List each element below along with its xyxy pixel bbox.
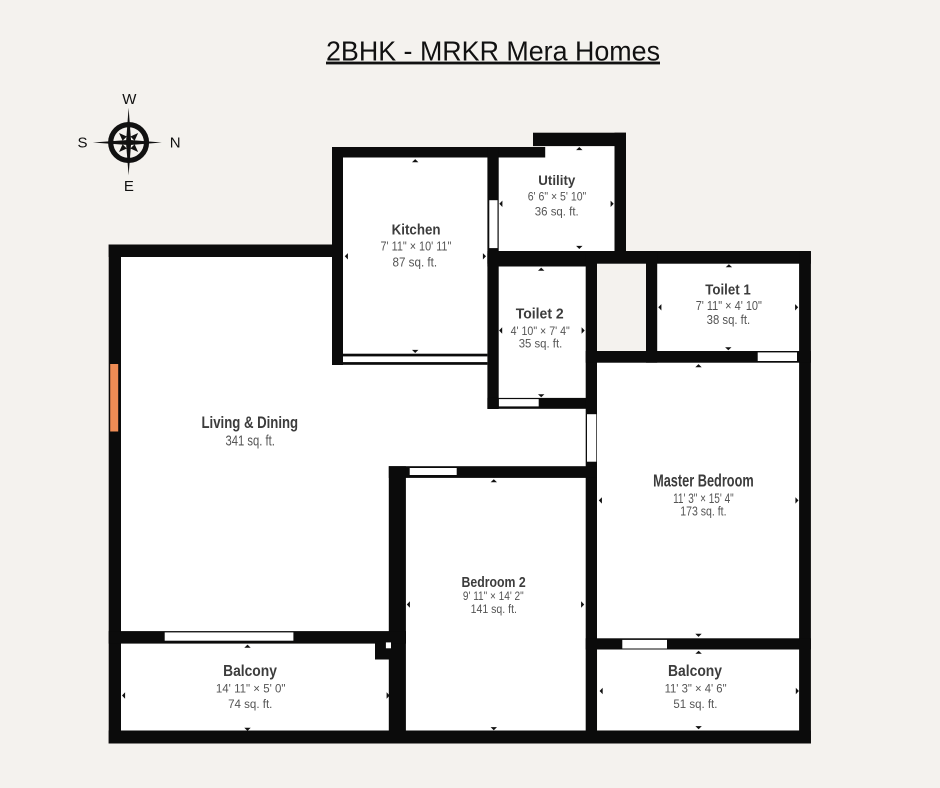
svg-text:Kitchen: Kitchen [392, 223, 441, 239]
svg-text:Living & Dining: Living & Dining [202, 414, 299, 432]
svg-text:Balcony: Balcony [668, 663, 722, 680]
svg-text:87 sq. ft.: 87 sq. ft. [393, 254, 438, 269]
svg-text:9' 11" × 14' 2": 9' 11" × 14' 2" [463, 589, 524, 603]
svg-text:Master Bedroom: Master Bedroom [653, 470, 754, 490]
svg-text:141 sq. ft.: 141 sq. ft. [471, 602, 517, 616]
svg-text:W: W [122, 91, 137, 108]
svg-text:7' 11" × 10' 11": 7' 11" × 10' 11" [381, 239, 452, 254]
svg-text:Toilet 1: Toilet 1 [705, 283, 750, 299]
svg-text:7' 11" × 4' 10": 7' 11" × 4' 10" [696, 299, 762, 313]
svg-text:11' 3" × 4' 6": 11' 3" × 4' 6" [665, 682, 727, 696]
svg-text:38 sq. ft.: 38 sq. ft. [707, 313, 751, 327]
svg-text:Toilet 2: Toilet 2 [516, 307, 564, 323]
svg-text:51 sq. ft.: 51 sq. ft. [673, 697, 717, 711]
svg-text:74 sq. ft.: 74 sq. ft. [228, 697, 272, 711]
svg-text:Balcony: Balcony [223, 663, 277, 680]
svg-text:N: N [170, 135, 181, 152]
svg-text:S: S [77, 135, 87, 152]
svg-text:Utility: Utility [538, 173, 575, 189]
svg-text:173 sq. ft.: 173 sq. ft. [680, 503, 726, 518]
svg-text:36 sq. ft.: 36 sq. ft. [535, 205, 579, 219]
svg-text:6' 6" × 5' 10": 6' 6" × 5' 10" [528, 190, 587, 204]
svg-text:E: E [124, 178, 134, 195]
svg-text:14' 11" × 5' 0": 14' 11" × 5' 0" [216, 681, 286, 695]
svg-text:35 sq. ft.: 35 sq. ft. [519, 337, 563, 351]
svg-text:341 sq. ft.: 341 sq. ft. [226, 433, 275, 449]
